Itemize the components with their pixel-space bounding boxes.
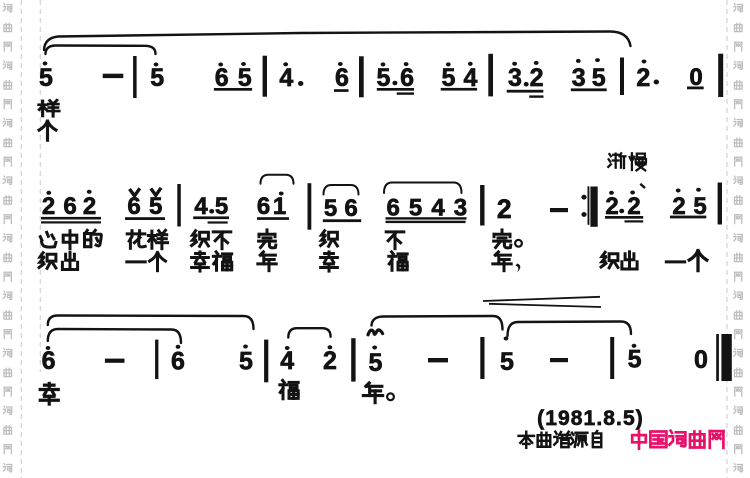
svg-text:2: 2 (497, 194, 512, 224)
svg-text:2: 2 (83, 193, 96, 220)
svg-text:5: 5 (215, 193, 228, 220)
svg-text:3: 3 (572, 64, 586, 92)
svg-text:6: 6 (63, 193, 76, 220)
svg-text:5: 5 (628, 346, 642, 374)
svg-text:2: 2 (605, 193, 618, 220)
svg-text:2: 2 (530, 64, 544, 92)
svg-text:1: 1 (273, 193, 286, 220)
svg-text:5: 5 (592, 64, 606, 92)
svg-text:6: 6 (344, 195, 357, 222)
svg-text:5: 5 (150, 64, 164, 92)
svg-text:4: 4 (194, 193, 208, 220)
svg-text:6: 6 (42, 347, 56, 375)
svg-text:5: 5 (368, 349, 382, 377)
svg-text:6: 6 (335, 64, 349, 92)
svg-text:3: 3 (508, 64, 522, 92)
svg-text:5: 5 (500, 348, 514, 376)
svg-text:4: 4 (279, 64, 293, 92)
svg-text:2: 2 (636, 64, 650, 92)
svg-text:5: 5 (239, 347, 253, 375)
svg-text:2: 2 (42, 193, 55, 220)
svg-text:6: 6 (257, 193, 270, 220)
svg-text:5: 5 (324, 195, 337, 222)
svg-text:4: 4 (280, 347, 294, 375)
svg-text:0: 0 (694, 346, 708, 374)
svg-text:2: 2 (627, 193, 640, 220)
svg-text:2: 2 (323, 347, 337, 375)
svg-text:(1981.8.5): (1981.8.5) (537, 407, 644, 430)
svg-text:5: 5 (39, 64, 53, 92)
svg-text:6: 6 (171, 348, 185, 376)
